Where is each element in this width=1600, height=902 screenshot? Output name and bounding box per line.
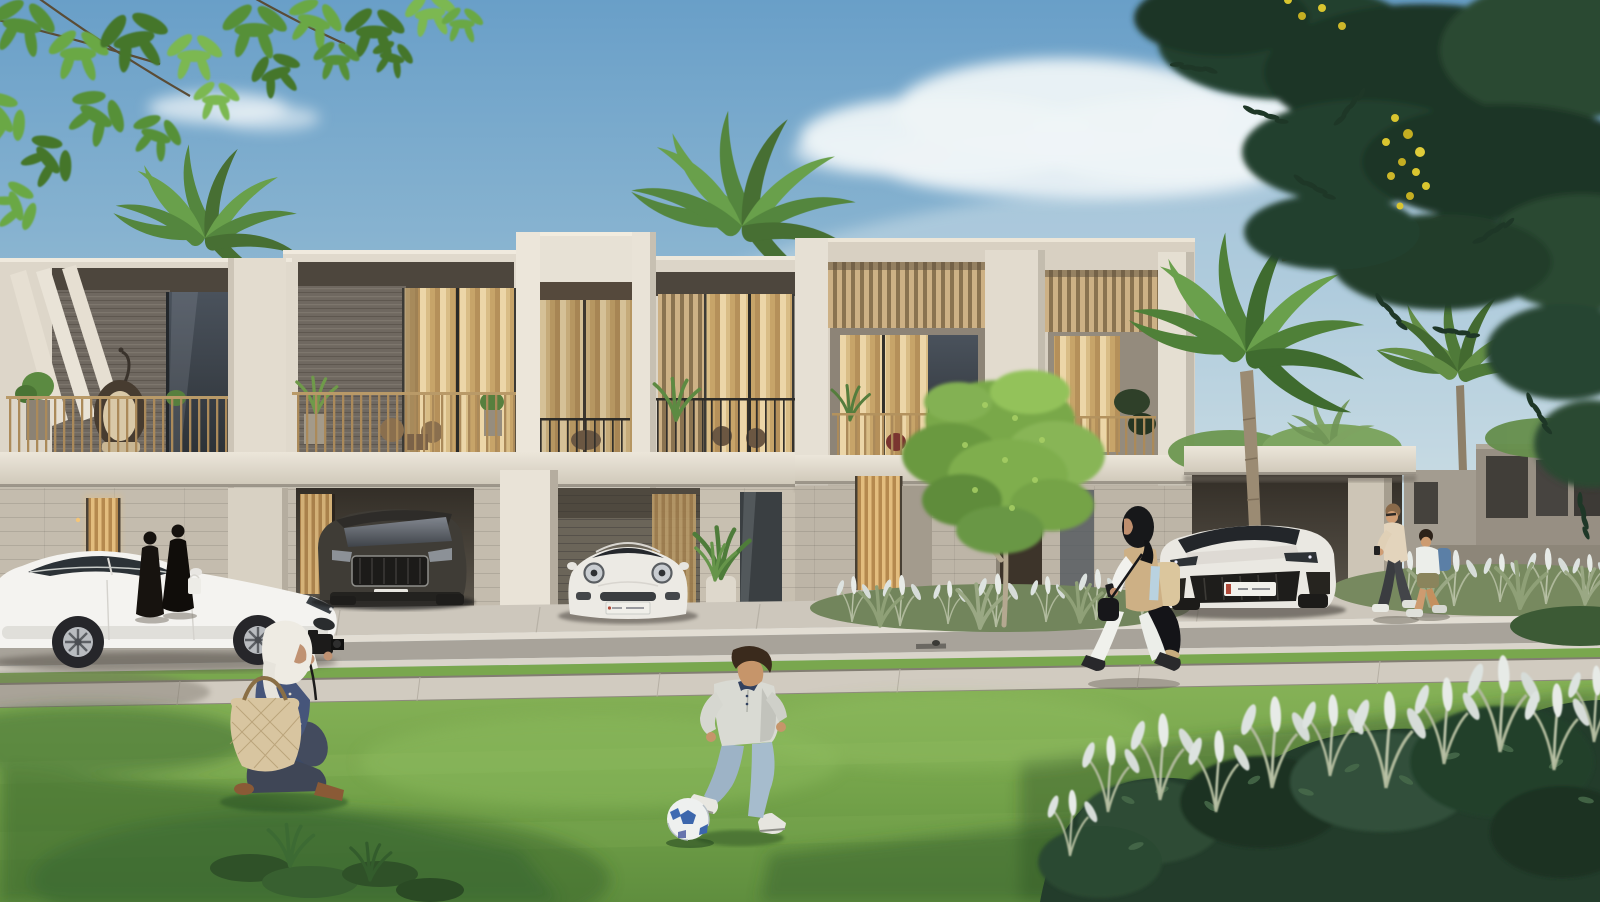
floor-slab [0, 452, 804, 486]
warm-louvre-window [857, 476, 902, 590]
wall-sconce [76, 518, 80, 522]
timber-louvre-screen-2 [1045, 270, 1158, 332]
balcony-plant-silhouette [1114, 389, 1150, 415]
road-drain [916, 643, 946, 649]
pigeon [932, 640, 940, 646]
carport-pier [500, 470, 558, 618]
timber-louvre-screen-1 [828, 262, 985, 328]
boy-tshirt [1416, 546, 1440, 576]
gold-railing-b [292, 394, 520, 454]
rendered-scene: Sunny architectural rendering of a moder… [0, 0, 1600, 902]
black-crossbody-bag [1098, 598, 1119, 621]
scene-illustration: Sunny architectural rendering of a moder… [0, 0, 1600, 902]
unit-b-upper-floor [292, 262, 520, 458]
white-handbag [188, 578, 201, 594]
unit-d-upper-floor [654, 272, 800, 458]
dark-suv [311, 509, 475, 610]
gold-railing-a [6, 398, 236, 456]
